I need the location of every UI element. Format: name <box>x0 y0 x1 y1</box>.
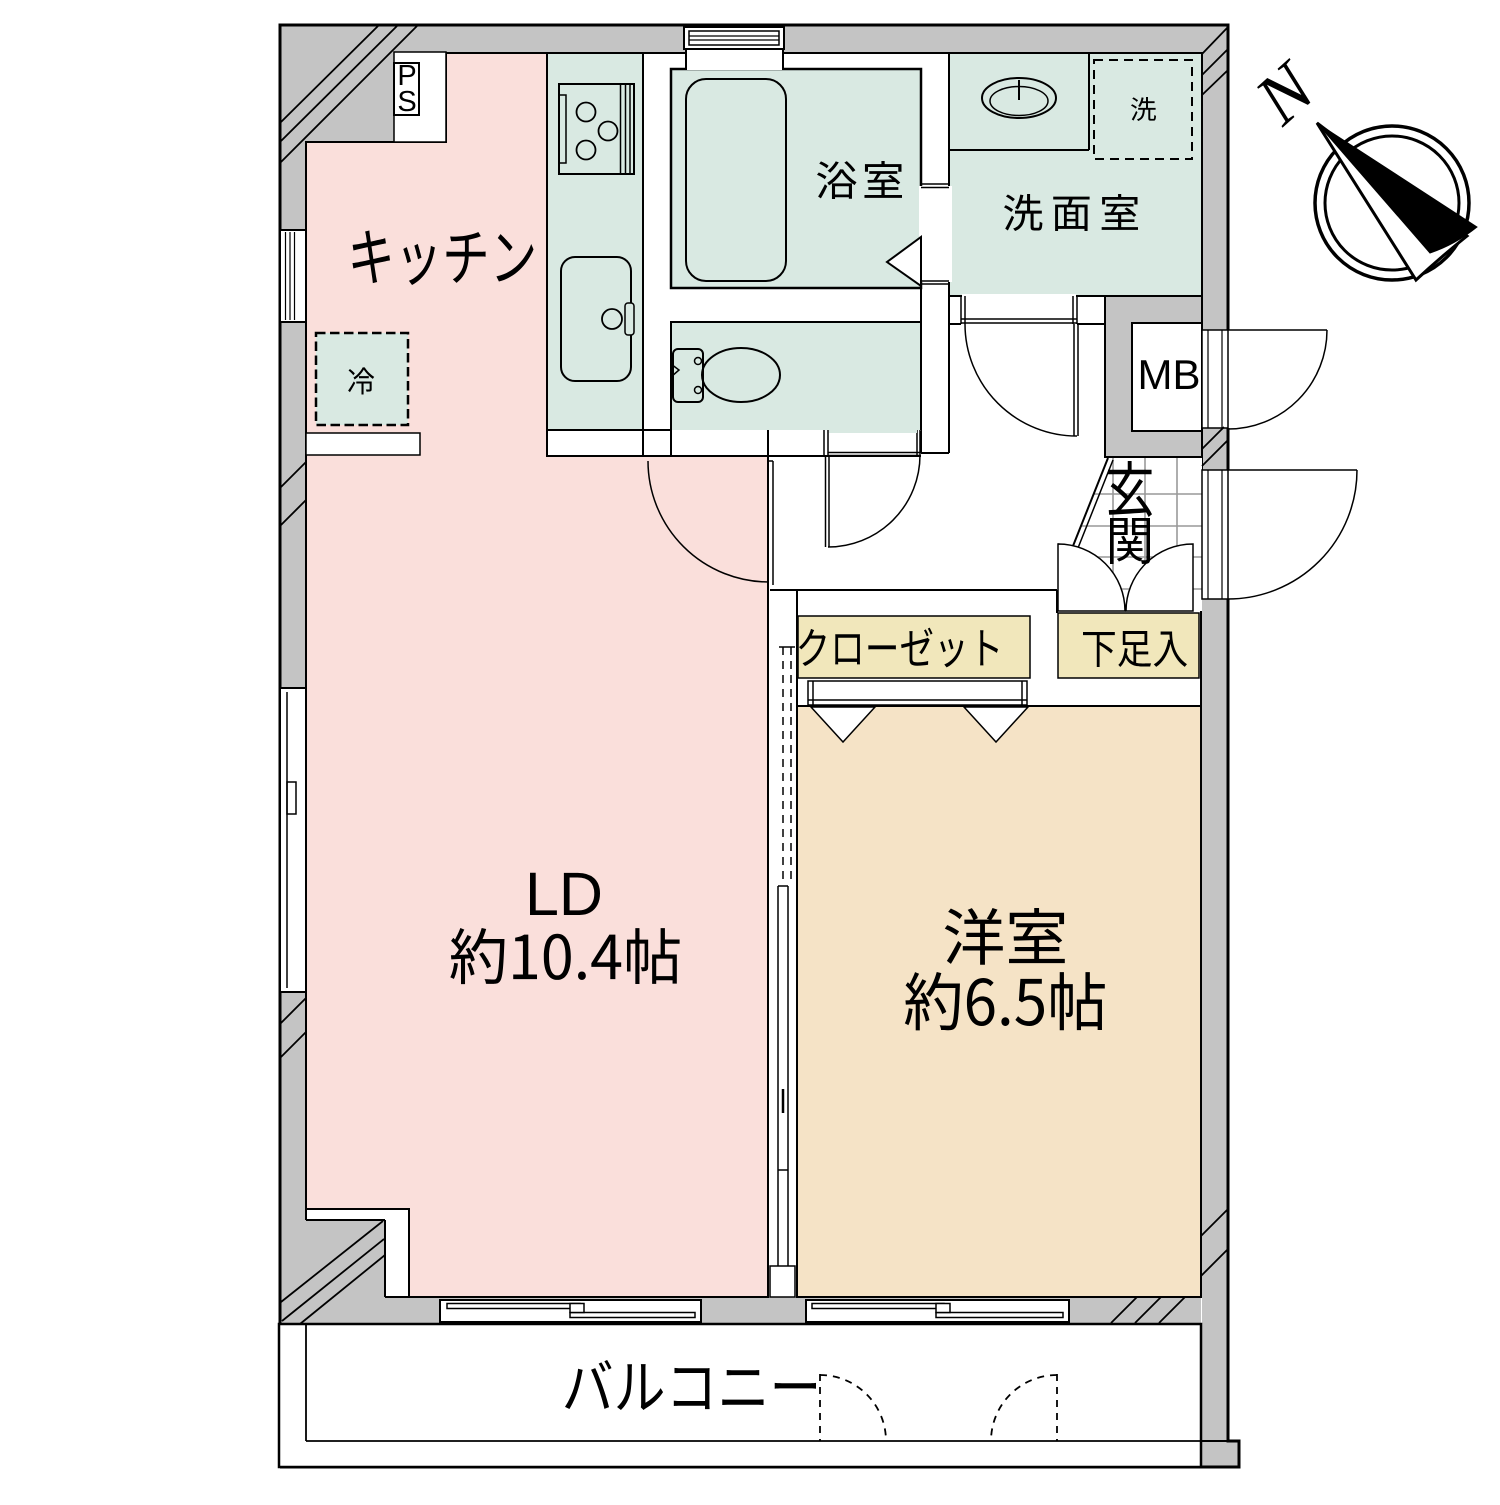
svg-text:MB: MB <box>1138 351 1201 398</box>
svg-text:LD: LD <box>525 860 603 928</box>
svg-text:S: S <box>397 86 416 118</box>
